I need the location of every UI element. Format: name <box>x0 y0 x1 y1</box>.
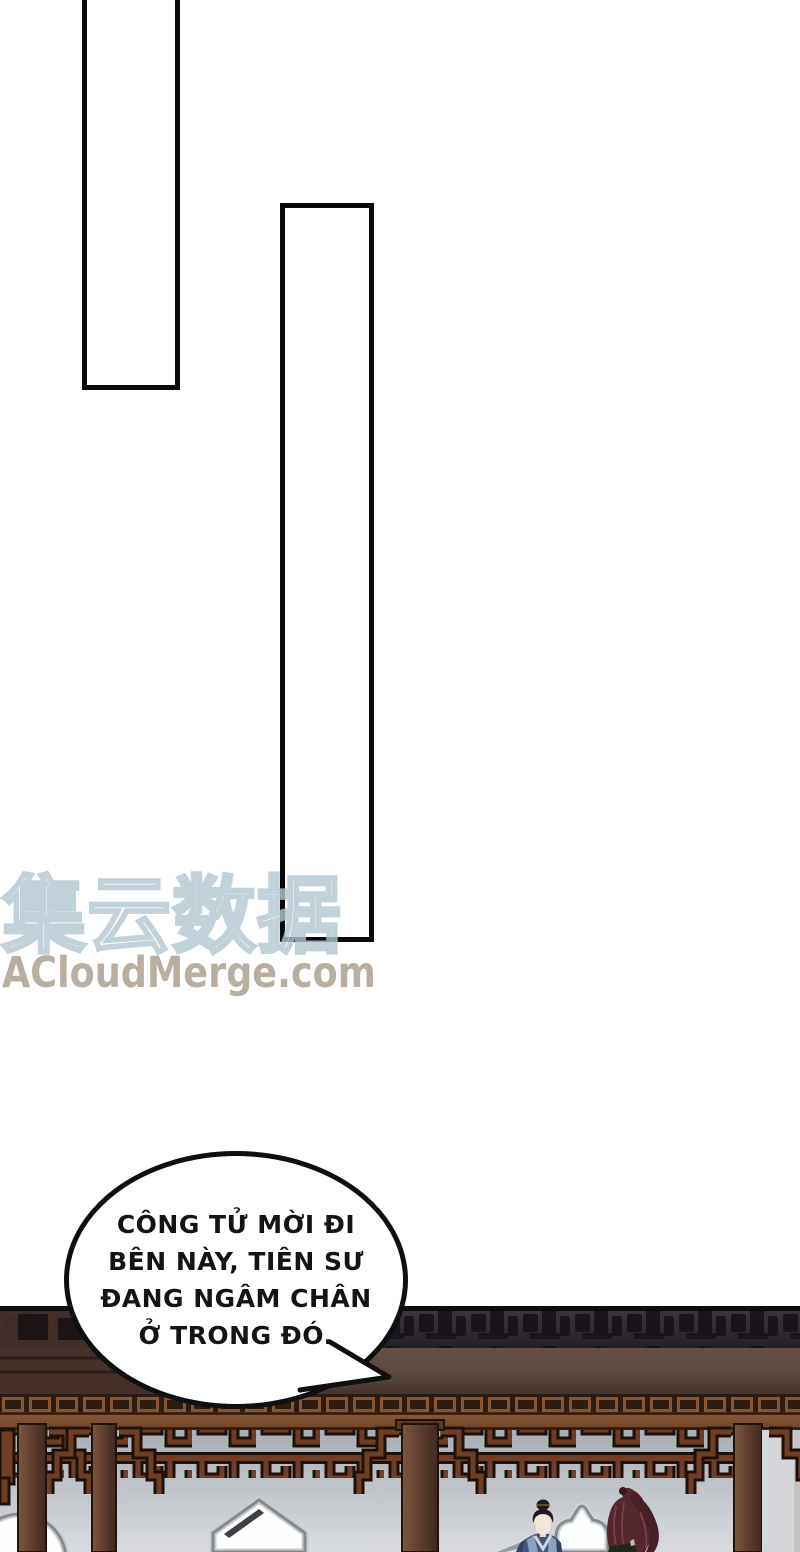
watermark-cjk-text: 集云数据 <box>2 874 342 958</box>
speech-line-2: BÊN NÀY, TIÊN SƯ <box>108 1243 364 1280</box>
right-edge-strip <box>794 1430 800 1552</box>
watermark-site-text: ACloudMerge.com <box>2 950 376 997</box>
column-right <box>734 1424 762 1552</box>
column-center <box>402 1424 438 1552</box>
speech-line-3: ĐANG NGÂM CHÂN <box>100 1280 371 1317</box>
column-left-outer <box>18 1424 46 1552</box>
speech-line-1: CÔNG TỬ MỜI ĐI <box>117 1206 355 1243</box>
speech-bubble-tail <box>293 1333 397 1395</box>
empty-panel-2 <box>280 203 374 942</box>
column-left-inner <box>92 1424 116 1552</box>
empty-panel-1 <box>82 0 180 390</box>
lattice-frieze <box>0 1394 800 1412</box>
comic-page: 集云数据 ACloudMerge.com <box>0 0 800 1552</box>
